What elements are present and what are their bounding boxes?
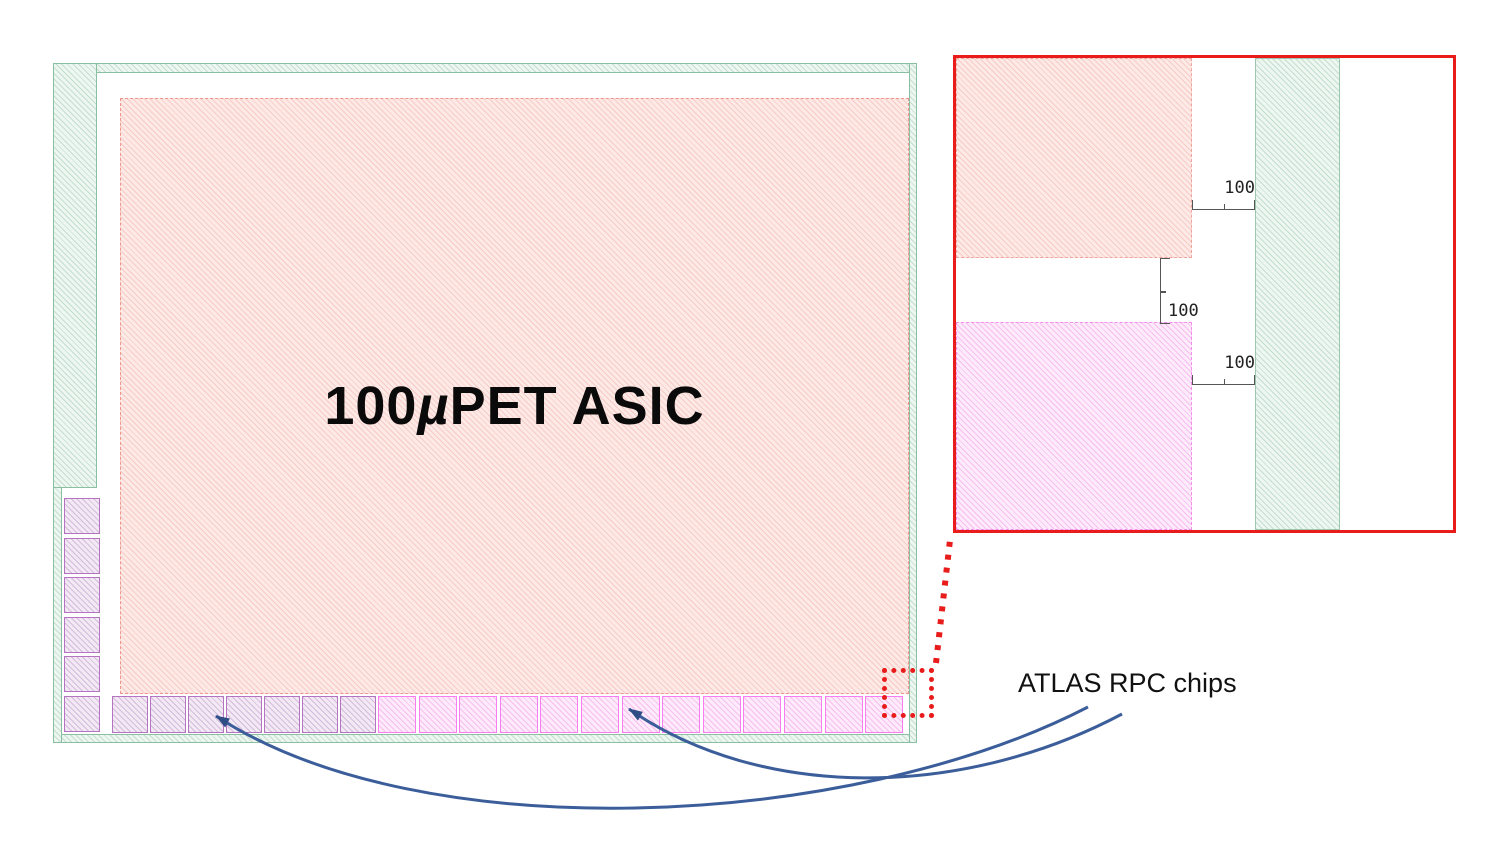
dimension-middle-value: 100 <box>1168 303 1199 320</box>
pad-bottom-muted <box>188 696 224 733</box>
pad-bottom-bright <box>459 696 497 733</box>
pad-bottom-bright <box>540 696 578 733</box>
pad-bottom-bright <box>825 696 863 733</box>
pad-left <box>64 617 100 653</box>
pad-bottom-bright <box>784 696 822 733</box>
dimension-bottom-bracket <box>1192 375 1255 385</box>
pad-bottom-bright <box>419 696 457 733</box>
dimension-bottom: 100 <box>1192 355 1255 385</box>
seal-ring-left-wide-strip <box>53 63 97 488</box>
pad-bottom-muted <box>264 696 300 733</box>
pad-bottom-muted <box>150 696 186 733</box>
pad-left <box>64 538 100 574</box>
seal-ring-bottom-bar <box>53 734 917 743</box>
pad-bottom-bright <box>378 696 416 733</box>
zoom-leader-line <box>936 540 950 663</box>
pad-left <box>64 656 100 692</box>
inset-pad-corner <box>956 322 1192 530</box>
bottom-pad-row-muted <box>112 696 376 733</box>
left-pad-column <box>64 498 100 732</box>
pad-bottom-bright <box>500 696 538 733</box>
seal-ring-top-bar <box>53 63 917 73</box>
dimension-middle: 100 <box>1160 258 1170 324</box>
asic-title-post: PET ASIC <box>450 376 705 436</box>
rpc-chips-label: ATLAS RPC chips <box>1018 669 1237 699</box>
pad-bottom-bright <box>743 696 781 733</box>
asic-title-pre: 100 <box>324 376 417 436</box>
pad-bottom-muted <box>226 696 262 733</box>
pad-bottom-bright <box>581 696 619 733</box>
inset-seal-ring <box>1255 58 1340 530</box>
pad-bottom-bright <box>662 696 700 733</box>
dimension-top: 100 <box>1192 180 1255 210</box>
pad-left <box>64 498 100 534</box>
layout-figure: 100µPET ASIC 100 100 100 ATLAS RPC chips <box>0 0 1500 844</box>
asic-title: 100µPET ASIC <box>121 379 908 433</box>
asic-core-block: 100µPET ASIC <box>120 98 909 694</box>
pad-bottom-bright <box>622 696 660 733</box>
asic-title-mu: µ <box>417 376 449 436</box>
dimension-bottom-value: 100 <box>1192 355 1255 372</box>
dimension-top-bracket <box>1192 200 1255 210</box>
dimension-top-value: 100 <box>1192 180 1255 197</box>
seal-ring-right-bar <box>909 63 917 743</box>
pad-bottom-muted <box>302 696 338 733</box>
bottom-pad-row-bright <box>378 696 903 733</box>
zoom-highlight-box <box>882 668 934 718</box>
zoom-inset: 100 100 100 <box>953 55 1456 533</box>
pad-bottom-muted <box>112 696 148 733</box>
pad-bottom-muted <box>340 696 376 733</box>
pad-left <box>64 577 100 613</box>
pad-left <box>64 696 100 732</box>
pad-bottom-bright <box>703 696 741 733</box>
inset-asic-corner <box>956 58 1192 258</box>
